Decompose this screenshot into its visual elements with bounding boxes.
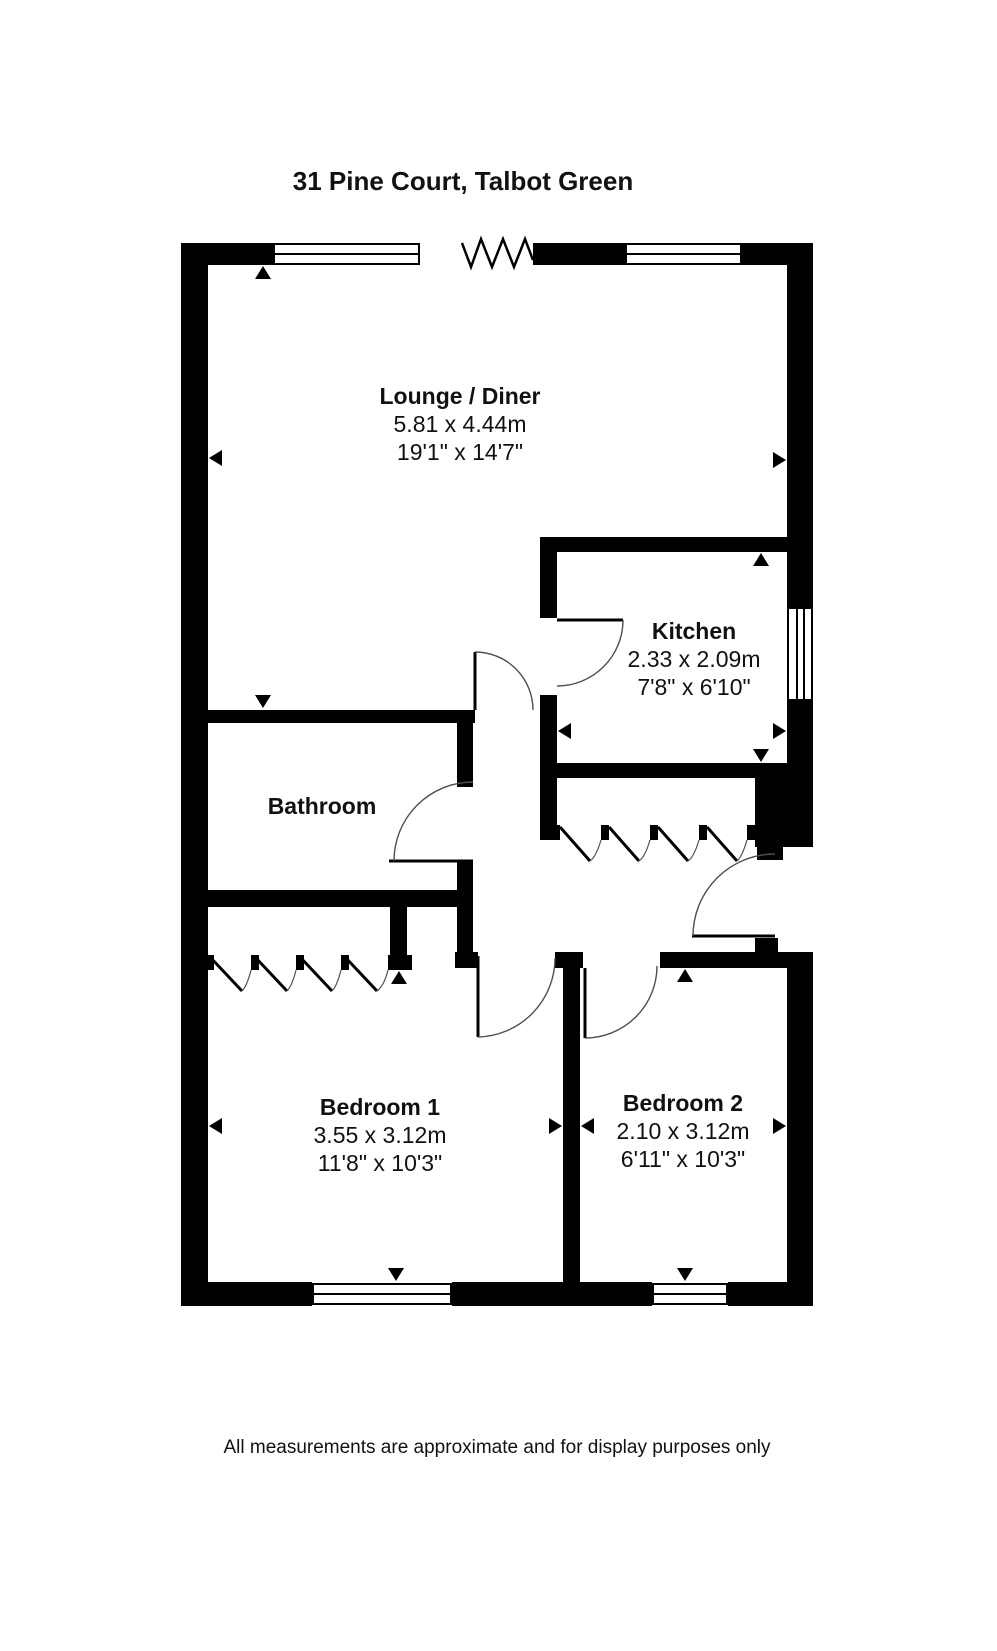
wall-bathroom-right-upper (457, 723, 473, 787)
arrow-down-icon (677, 1268, 693, 1281)
arrow-right-icon (549, 1118, 562, 1134)
room-metric: 5.81 x 4.44m (380, 410, 541, 438)
room-label-bedroom2: Bedroom 2 2.10 x 3.12m 6'11" x 10'3" (617, 1089, 750, 1173)
wall-bottom-1 (181, 1282, 312, 1306)
page-title: 31 Pine Court, Talbot Green (293, 166, 633, 197)
wall-bottom-3 (728, 1282, 813, 1306)
wall-lounge-bottom (181, 710, 475, 723)
arrow-left-icon (209, 1118, 222, 1134)
wall-break-zigzag (462, 239, 533, 267)
room-name: Lounge / Diner (380, 382, 541, 410)
room-name: Kitchen (628, 617, 761, 645)
door-kitchen (557, 620, 623, 686)
wall-entrance-stub (755, 938, 778, 952)
window-bedroom1 (313, 1284, 451, 1304)
wall-right-upper (787, 243, 813, 847)
arrow-down-icon (255, 695, 271, 708)
wall-bathroom-right-lower (457, 861, 473, 955)
wall-kitchen-top (540, 537, 787, 552)
jamb (699, 825, 707, 840)
wall-divider-stub (555, 952, 583, 968)
wall-bathroom-bottom (181, 890, 473, 907)
wall-bed1-closet-right (390, 907, 407, 955)
arrow-up-icon (391, 971, 407, 984)
jamb (650, 825, 658, 840)
wall-bottom-2 (452, 1282, 652, 1306)
window-kitchen (788, 608, 812, 700)
room-label-bedroom1: Bedroom 1 3.55 x 3.12m 11'8" x 10'3" (314, 1093, 447, 1177)
jamb (747, 825, 755, 840)
room-imperial: 11'8" x 10'3" (314, 1149, 447, 1177)
wall-kitchen-bottom (555, 763, 787, 778)
wall-kitchen-left-lower (540, 695, 557, 840)
room-metric: 3.55 x 3.12m (314, 1121, 447, 1149)
room-imperial: 7'8" x 6'10" (628, 673, 761, 701)
room-imperial: 19'1" x 14'7" (380, 438, 541, 466)
room-name: Bedroom 1 (314, 1093, 447, 1121)
room-metric: 2.33 x 2.09m (628, 645, 761, 673)
arrow-up-icon (753, 553, 769, 566)
arrow-right-icon (773, 452, 786, 468)
room-label-kitchen: Kitchen 2.33 x 2.09m 7'8" x 6'10" (628, 617, 761, 701)
room-label-bathroom: Bathroom (268, 792, 377, 820)
door-bedroom1 (478, 956, 555, 1037)
room-name: Bathroom (268, 792, 377, 820)
wall-bed1-door-stub (455, 952, 478, 968)
jamb (601, 825, 609, 840)
arrow-left-icon (558, 723, 571, 739)
wall-right-lower (787, 952, 813, 1306)
door-lounge (475, 652, 533, 710)
window-lounge-left (274, 244, 419, 264)
window-lounge-right (626, 244, 741, 264)
door-bedroom2 (585, 966, 657, 1038)
room-metric: 2.10 x 3.12m (617, 1117, 750, 1145)
arrow-left-icon (581, 1118, 594, 1134)
arrow-down-icon (753, 749, 769, 762)
window-bedroom2 (653, 1284, 727, 1304)
room-label-lounge: Lounge / Diner 5.81 x 4.44m 19'1" x 14'7… (380, 382, 541, 466)
wall-top-1 (181, 243, 273, 265)
wall-bedroom-divider (563, 968, 580, 1282)
room-imperial: 6'11" x 10'3" (617, 1145, 750, 1173)
disclaimer-text: All measurements are approximate and for… (223, 1437, 770, 1459)
door-bathroom (389, 782, 473, 861)
wall-left (181, 243, 208, 1306)
jamb (552, 825, 560, 840)
floorplan-page: 31 Pine Court, Talbot Green Lounge / Din… (0, 0, 997, 1651)
door-entrance (692, 854, 775, 936)
arrow-up-icon (677, 969, 693, 982)
floorplan-drawing (0, 0, 997, 1651)
arrow-up-icon (255, 266, 271, 279)
wall-entrance-block (755, 778, 813, 847)
wall-bed2-top (660, 952, 813, 968)
arrow-down-icon (388, 1268, 404, 1281)
arrow-right-icon (773, 723, 786, 739)
arrow-left-icon (209, 450, 222, 466)
wall-top-2 (533, 243, 625, 265)
room-name: Bedroom 2 (617, 1089, 750, 1117)
wall-bed1-closet-stub (388, 955, 412, 970)
arrow-right-icon (773, 1118, 786, 1134)
